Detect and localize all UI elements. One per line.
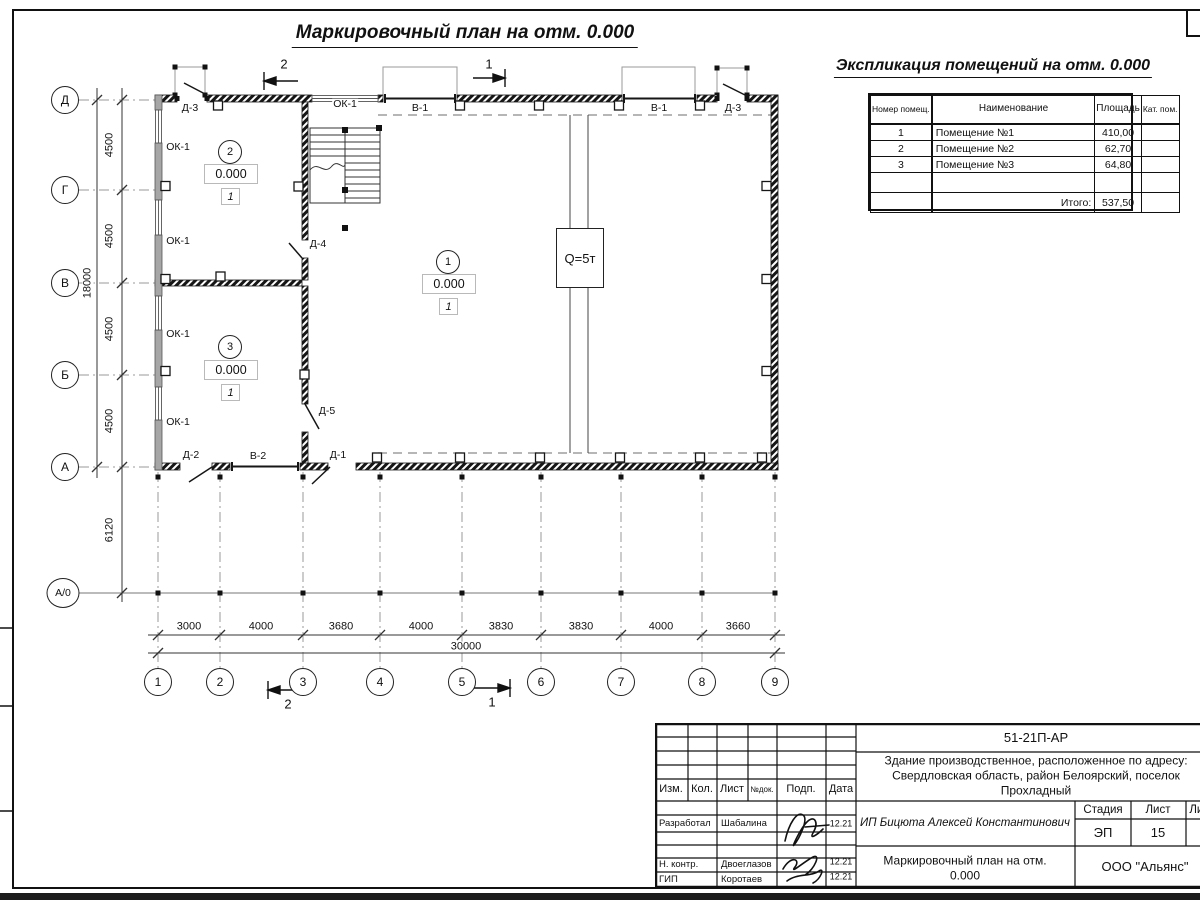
room-name-cell: Помещение №2 xyxy=(932,141,1095,157)
table-row: 3 Помещение №3 64,80 xyxy=(871,157,1180,173)
room-name-cell: Помещение №3 xyxy=(932,157,1095,173)
dim-7-8: 4000 xyxy=(648,622,674,633)
porch-posts xyxy=(173,65,750,98)
room-bubble-3: 3 xyxy=(218,335,242,359)
axis-bubble-6: 6 xyxy=(527,668,555,696)
door-label-d1: Д-1 xyxy=(329,450,347,461)
room-area-cell: 410,00 xyxy=(1095,124,1142,141)
axis-bubble-8: 8 xyxy=(688,668,716,696)
table-total-row: Итого: 537,50 xyxy=(871,193,1180,213)
col-header-area: Площадь xyxy=(1095,96,1142,125)
col-podp: Подп. xyxy=(786,784,815,796)
page-title: Маркировочный план на отм. 0.000 xyxy=(292,22,638,48)
section-mark-1: 1 xyxy=(485,58,492,71)
table-row: 1 Помещение №1 410,00 xyxy=(871,124,1180,141)
sheet-label: Лист xyxy=(1146,804,1171,816)
table-header-row: Номер помещ. Наименование Площадь Кат. п… xyxy=(871,96,1180,125)
dim-total-left: 18000 xyxy=(83,267,94,300)
dim-2-3: 4000 xyxy=(248,622,274,633)
axis-bubble-D: Д xyxy=(51,86,79,114)
axis-bubble-A: А xyxy=(51,453,79,481)
dim-B-A: 4500 xyxy=(105,408,116,434)
section-mark-2: 2 xyxy=(280,58,287,71)
crane-capacity-label: Q=5т xyxy=(556,228,604,288)
window-label-ok1: ОК-1 xyxy=(165,142,191,153)
col-kol: Кол. xyxy=(691,784,713,796)
stage-label: Стадия xyxy=(1083,804,1122,816)
elevation-mark: 0.000 xyxy=(204,164,258,184)
room-cat-cell xyxy=(1141,157,1179,173)
axis-lines xyxy=(79,100,775,669)
col-list: Лист xyxy=(720,784,744,796)
section-arrows xyxy=(264,69,510,699)
dim-1-2: 3000 xyxy=(176,622,202,633)
col-header-name: Наименование xyxy=(932,96,1095,125)
room-bubble-2: 2 xyxy=(218,140,242,164)
room-name-cell: Помещение №1 xyxy=(932,124,1095,141)
project-description-line2: Свердловская область, район Белоярский, … xyxy=(892,770,1180,783)
axis-bubble-A0: А/0 xyxy=(47,578,80,608)
axis-bubble-9: 9 xyxy=(761,668,789,696)
name-ncontrol: Двоеглазов xyxy=(721,860,772,870)
room-cat-cell xyxy=(1141,141,1179,157)
gate-label-v2: В-2 xyxy=(249,451,267,462)
table-row: 2 Помещение №2 62,70 xyxy=(871,141,1180,157)
col-ndok: №док. xyxy=(750,786,773,794)
floor-type-mark: 1 xyxy=(221,188,240,205)
porches xyxy=(175,67,747,98)
room-number-cell: 1 xyxy=(871,124,932,141)
dim-4-5: 4000 xyxy=(408,622,434,633)
axis-bubble-5: 5 xyxy=(448,668,476,696)
col-header-number: Номер помещ. xyxy=(871,96,932,125)
room-cat-cell xyxy=(1141,124,1179,141)
drawing-sheet: Маркировочный план на отм. 0.000 Эксплик… xyxy=(0,0,1200,900)
canopy-columns xyxy=(79,475,778,596)
company-name: ООО "Альянс" xyxy=(1102,860,1189,874)
floor-type-mark: 1 xyxy=(439,298,458,315)
name-gip: Коротаев xyxy=(721,875,762,885)
axis-bubble-3: 3 xyxy=(289,668,317,696)
document-code: 51-21П-АР xyxy=(1004,731,1068,745)
window-label-ok1: ОК-1 xyxy=(165,417,191,428)
axis-bubble-2: 2 xyxy=(206,668,234,696)
explication-title: Экспликация помещений на отм. 0.000 xyxy=(834,57,1152,78)
sheet-value: 15 xyxy=(1151,826,1165,840)
col-izm: Изм. xyxy=(659,784,683,796)
col-header-category: Кат. пом. xyxy=(1141,96,1179,125)
date-ncontrol: 12.21 xyxy=(830,857,853,866)
stairs xyxy=(310,125,382,231)
axis-bubble-4: 4 xyxy=(366,668,394,696)
drawing-title-line1: Маркировочный план на отм. xyxy=(883,855,1046,868)
drawing-title-line2: 0.000 xyxy=(950,870,980,883)
elevation-mark: 0.000 xyxy=(422,274,476,294)
col-data: Дата xyxy=(829,784,853,796)
section-mark-2: 2 xyxy=(284,698,291,711)
date-gip: 12.21 xyxy=(830,872,853,881)
total-value: 537,50 xyxy=(1095,193,1142,213)
date-developer: 12.21 xyxy=(830,819,853,828)
dim-3-4: 3680 xyxy=(328,622,354,633)
window-label-ok1: ОК-1 xyxy=(332,99,358,110)
gate-label-v1: В-1 xyxy=(411,103,429,114)
project-description-line3: Прохладный xyxy=(1001,785,1071,798)
table-row-empty xyxy=(871,173,1180,193)
stage-value: ЭП xyxy=(1094,826,1113,840)
axis-bubble-V: В xyxy=(51,269,79,297)
axis-bubble-B: Б xyxy=(51,361,79,389)
dim-8-9: 3660 xyxy=(725,622,751,633)
title-block: 51-21П-АР Здание производственное, распо… xyxy=(655,723,1200,888)
room-bubble-1: 1 xyxy=(436,250,460,274)
room-number-cell: 3 xyxy=(871,157,932,173)
room-area-cell: 64,80 xyxy=(1095,157,1142,173)
door-label-d3: Д-3 xyxy=(181,103,199,114)
window-label-ok1: ОК-1 xyxy=(165,329,191,340)
role-ncontrol: Н. контр. xyxy=(659,860,698,870)
elevation-mark: 0.000 xyxy=(204,360,258,380)
client-name: ИП Бицюта Алексей Константинович xyxy=(860,817,1070,829)
room-number-cell: 2 xyxy=(871,141,932,157)
axis-bubble-1: 1 xyxy=(144,668,172,696)
dim-D-G: 4500 xyxy=(105,132,116,158)
axis-bubble-7: 7 xyxy=(607,668,635,696)
gate-label-v1: В-1 xyxy=(650,103,668,114)
explication-table: Номер помещ. Наименование Площадь Кат. п… xyxy=(870,95,1180,213)
door-label-d5: Д-5 xyxy=(318,406,336,417)
dim-G-V: 4500 xyxy=(105,223,116,249)
role-gip: ГИП xyxy=(659,875,678,885)
section-mark-1: 1 xyxy=(488,696,495,709)
dim-5-6: 3830 xyxy=(488,622,514,633)
name-developer: Шабалина xyxy=(721,819,767,829)
window-label-ok1: ОК-1 xyxy=(165,236,191,247)
dim-V-B: 4500 xyxy=(105,316,116,342)
room-area-cell: 62,70 xyxy=(1095,141,1142,157)
dim-A-A0: 6120 xyxy=(105,517,116,543)
axis-bubble-G: Г xyxy=(51,176,79,204)
total-label: Итого: xyxy=(932,193,1095,213)
floor-type-mark: 1 xyxy=(221,384,240,401)
door-label-d2: Д-2 xyxy=(182,450,200,461)
role-developer: Разработал xyxy=(659,819,711,829)
project-description-line1: Здание производственное, расположенное п… xyxy=(884,755,1187,768)
dim-6-7: 3830 xyxy=(568,622,594,633)
dim-total-bottom: 30000 xyxy=(450,642,483,653)
sheets-label: Листов xyxy=(1189,804,1200,816)
door-label-d4: Д-4 xyxy=(309,239,327,250)
door-label-d3: Д-3 xyxy=(724,103,742,114)
